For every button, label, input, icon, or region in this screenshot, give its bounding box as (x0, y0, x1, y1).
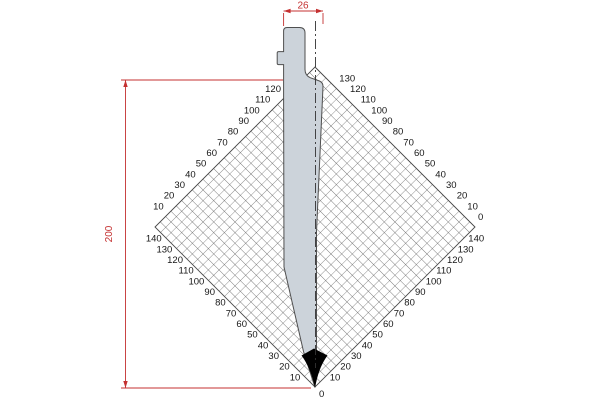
ruler-label-top_right-20: 20 (457, 191, 468, 202)
ruler-label-top_right-10: 10 (467, 201, 478, 212)
ruler-label-top_left-90: 90 (238, 116, 249, 127)
ruler-label-bottom_left-40: 40 (258, 340, 269, 351)
ruler-label-top_left-120: 120 (265, 84, 281, 95)
width-dimension-lines (284, 11, 323, 26)
ruler-label-top_right-30: 30 (446, 180, 457, 191)
ruler-label-bottom_right-90: 90 (415, 287, 426, 298)
ruler-label-bottom_right-70: 70 (394, 308, 405, 319)
ruler-label-top_left-110: 110 (255, 95, 270, 106)
ruler-label-bottom_left-130: 130 (156, 244, 172, 255)
ruler-label-top_right-60: 60 (414, 148, 425, 159)
punch-technical-drawing: 1201101009080706050403020101301201101009… (0, 0, 600, 400)
ruler-label-bottom_right-30: 30 (351, 351, 362, 362)
ruler-label-top_right-90: 90 (382, 116, 393, 127)
ruler-label-bottom_left-60: 60 (236, 319, 247, 330)
ruler-label-bottom_left-50: 50 (247, 330, 258, 341)
ruler-label-bottom_right-80: 80 (404, 298, 415, 309)
ruler-label-top_left-30: 30 (174, 180, 185, 191)
ruler-label-bottom_left-90: 90 (204, 287, 215, 298)
ruler-label-bottom_left-30: 30 (268, 351, 279, 362)
ruler-label-top_right-0: 0 (478, 212, 483, 223)
ruler-label-top_right-120: 120 (350, 84, 366, 95)
ruler-label-top_left-100: 100 (244, 105, 260, 116)
ruler-label-top_left-20: 20 (164, 191, 175, 202)
ruler-label-bottom_right-60: 60 (383, 319, 394, 330)
ruler-label-top_right-130: 130 (339, 73, 355, 84)
ruler-label-top_left-80: 80 (228, 127, 239, 138)
ruler-label-top_left-70: 70 (217, 137, 228, 148)
ruler-label-bottom_left-80: 80 (215, 298, 226, 309)
ruler-label-top_right-80: 80 (393, 127, 404, 138)
ruler-label-bottom_right-110: 110 (436, 266, 451, 277)
ruler-label-bottom_left-20: 20 (279, 362, 290, 373)
ruler-label-top_right-110: 110 (361, 95, 376, 106)
ruler-label-bottom_right-20: 20 (340, 362, 351, 373)
ruler-label-top_right-100: 100 (371, 105, 387, 116)
ruler-label-top_right-40: 40 (435, 169, 446, 180)
ruler-label-top_right-50: 50 (425, 159, 436, 170)
ruler-label-top_left-40: 40 (185, 169, 196, 180)
ruler-label-bottom_right-10: 10 (330, 372, 341, 383)
ruler-label-bottom_right-40: 40 (362, 340, 373, 351)
height-dimension-value: 200 (104, 225, 115, 242)
ruler-label-top_right-70: 70 (403, 137, 414, 148)
ruler-label-top_left-50: 50 (196, 159, 207, 170)
ruler-label-bottom_right-140: 140 (468, 234, 484, 245)
ruler-label-tip-zero: 0 (319, 389, 324, 400)
ruler-label-bottom_right-120: 120 (447, 255, 463, 266)
ruler-label-top_left-10: 10 (153, 201, 164, 212)
ruler-label-bottom_left-120: 120 (167, 255, 183, 266)
ruler-label-bottom_right-50: 50 (372, 330, 383, 341)
ruler-label-bottom_left-70: 70 (226, 308, 237, 319)
ruler-label-bottom_left-100: 100 (188, 276, 204, 287)
width-dimension: 26 (284, 1, 323, 27)
ruler-label-bottom_left-140: 140 (146, 234, 162, 245)
ruler-label-bottom_right-130: 130 (458, 244, 474, 255)
width-dimension-value: 26 (297, 1, 309, 12)
ruler-label-bottom_left-110: 110 (179, 266, 194, 277)
ruler-label-top_left-60: 60 (206, 148, 217, 159)
ruler-label-bottom_left-10: 10 (290, 372, 301, 383)
ruler-label-bottom_right-100: 100 (426, 276, 442, 287)
